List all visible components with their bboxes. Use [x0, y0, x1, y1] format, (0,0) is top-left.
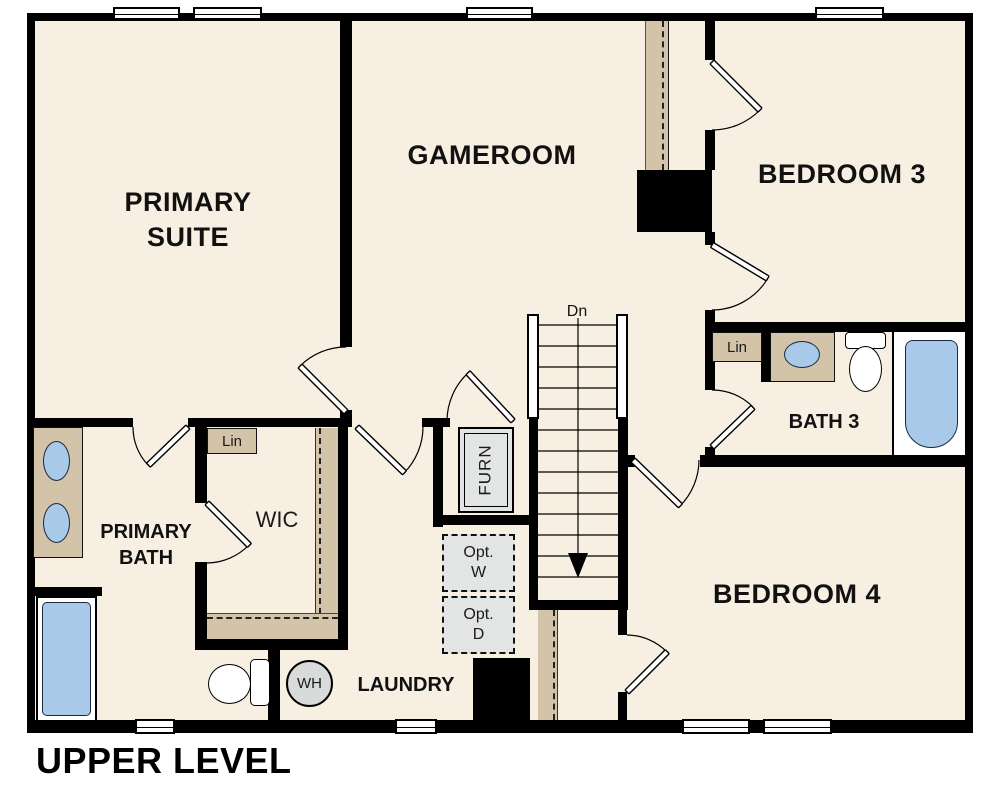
closet-rod-dashed-line [319, 428, 321, 614]
wall-wic-west-bottom [195, 562, 207, 650]
tub-icon [905, 340, 958, 448]
window [135, 719, 175, 734]
exterior-wall-west [27, 13, 35, 733]
wall-stair-west [529, 418, 538, 610]
sink-icon [43, 441, 70, 481]
room-label-primary-bath: PRIMARY BATH [100, 519, 191, 571]
room-label-bedroom4: BEDROOM 4 [713, 577, 881, 612]
toilet-icon [208, 659, 270, 707]
chase-south [473, 658, 530, 720]
room-label-bedroom3: BEDROOM 3 [758, 157, 926, 192]
closet-rod-dashed-line [207, 617, 338, 619]
wall-closet4-stub-bottom [618, 692, 627, 720]
room-label-gameroom: GAMEROOM [408, 138, 577, 173]
wall-furnace-south [433, 515, 530, 525]
wall-bedroom3-closet-b [705, 130, 715, 170]
window [815, 7, 884, 20]
shower-icon [42, 602, 91, 716]
tub-enclosure [892, 332, 965, 455]
room-label-wic: WIC [256, 506, 299, 535]
wall-wic-west-top [195, 418, 207, 503]
wall-linen-bath3-east [761, 332, 770, 382]
window [682, 719, 750, 734]
wic-shelf-south [207, 613, 338, 639]
wall-stair-landing-south [529, 600, 628, 610]
wall-furnace-west [433, 418, 443, 527]
wall-primary-gameroom [340, 21, 352, 347]
wic-shelf-east [315, 428, 338, 614]
water-heater: WH [286, 660, 333, 707]
opt-dryer-line2: D [463, 625, 493, 645]
furnace-unit: FURN [458, 427, 514, 513]
linen-label: Lin [727, 339, 747, 356]
linen-closet-wic: Lin [207, 428, 257, 454]
chase-north [637, 170, 712, 232]
exterior-wall-east [965, 13, 973, 733]
furnace-label: FURN [476, 444, 496, 495]
toilet-icon [845, 332, 887, 394]
wall-bath3-north [705, 322, 965, 332]
optional-washer: Opt. W [442, 534, 515, 592]
opt-washer-line1: Opt. [463, 543, 493, 563]
linen-closet-bath3: Lin [712, 332, 762, 362]
wall-shower-north [35, 587, 102, 596]
wall-bedroom3-closet-a [705, 21, 715, 60]
plan-title: UPPER LEVEL [36, 740, 292, 782]
room-label-laundry: LAUNDRY [357, 672, 454, 698]
wall-primary-bath-north-a [35, 418, 133, 427]
floor-plan: Lin Lin FURN Opt. W [0, 0, 1000, 800]
wall-bath3-south [700, 455, 965, 467]
sink-icon [43, 503, 70, 543]
closet-rod-dashed-line [662, 21, 664, 170]
closet-rod-dashed-line [553, 610, 555, 720]
linen-label: Lin [222, 433, 242, 450]
wall-primary-bath-north-b [188, 418, 352, 427]
water-heater-label: WH [297, 675, 322, 692]
wall-bedroom4-door-stub [627, 455, 635, 467]
bedroom4-closet-shelf [538, 610, 558, 720]
wall-closet4-stub-top [618, 610, 627, 635]
bedroom3-closet-shelf [645, 21, 669, 170]
room-label-bath3: BATH 3 [789, 409, 860, 435]
wall-bedroom3-west-stub-top [705, 232, 715, 245]
wall-wic-east [338, 418, 348, 650]
wall-wic-south [195, 638, 348, 650]
optional-dryer: Opt. D [442, 596, 515, 654]
sink-icon [784, 341, 820, 368]
shower-enclosure [36, 596, 97, 722]
opt-dryer-line1: Opt. [463, 605, 493, 625]
stairs-direction-label: Dn [567, 302, 587, 323]
window [763, 719, 832, 734]
opt-washer-line2: W [463, 563, 493, 583]
window [466, 7, 533, 20]
window [113, 7, 180, 20]
room-label-primary-suite: PRIMARY SUITE [124, 185, 251, 255]
wall-stair-east [618, 418, 628, 610]
window [193, 7, 262, 20]
window [395, 719, 437, 734]
